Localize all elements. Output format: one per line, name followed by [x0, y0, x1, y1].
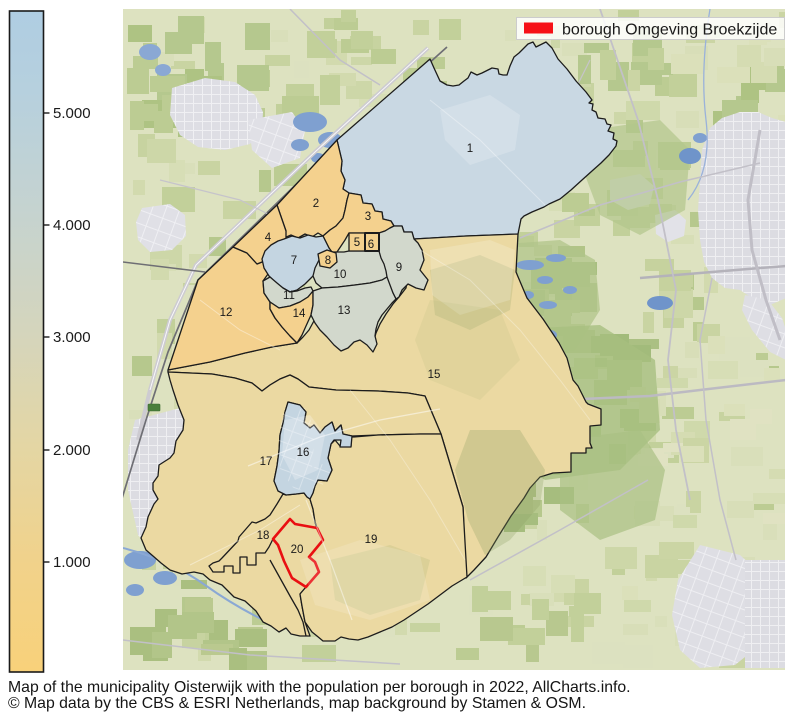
svg-text:borough Omgeving Broekzijde: borough Omgeving Broekzijde	[562, 22, 777, 39]
svg-text:9: 9	[396, 262, 402, 274]
svg-text:5: 5	[354, 237, 360, 249]
svg-text:10: 10	[334, 269, 347, 281]
svg-text:4.000: 4.000	[53, 217, 91, 234]
svg-text:20: 20	[291, 544, 304, 556]
svg-text:3.000: 3.000	[53, 329, 91, 346]
svg-text:13: 13	[338, 305, 351, 317]
svg-text:1: 1	[467, 143, 473, 155]
svg-text:4: 4	[265, 232, 272, 244]
svg-text:2: 2	[313, 198, 319, 210]
svg-text:18: 18	[257, 530, 270, 542]
svg-text:12: 12	[220, 307, 233, 319]
svg-text:7: 7	[291, 255, 297, 267]
svg-text:11: 11	[283, 290, 295, 302]
svg-text:8: 8	[325, 255, 331, 267]
svg-text:1.000: 1.000	[53, 554, 91, 571]
svg-text:14: 14	[293, 308, 306, 320]
svg-text:6: 6	[368, 239, 374, 251]
svg-text:3: 3	[365, 211, 371, 223]
svg-text:15: 15	[428, 369, 441, 381]
svg-text:5.000: 5.000	[53, 105, 91, 122]
svg-text:16: 16	[297, 447, 310, 459]
svg-text:17: 17	[260, 456, 273, 468]
svg-text:2.000: 2.000	[53, 442, 91, 459]
svg-text:19: 19	[365, 534, 378, 546]
